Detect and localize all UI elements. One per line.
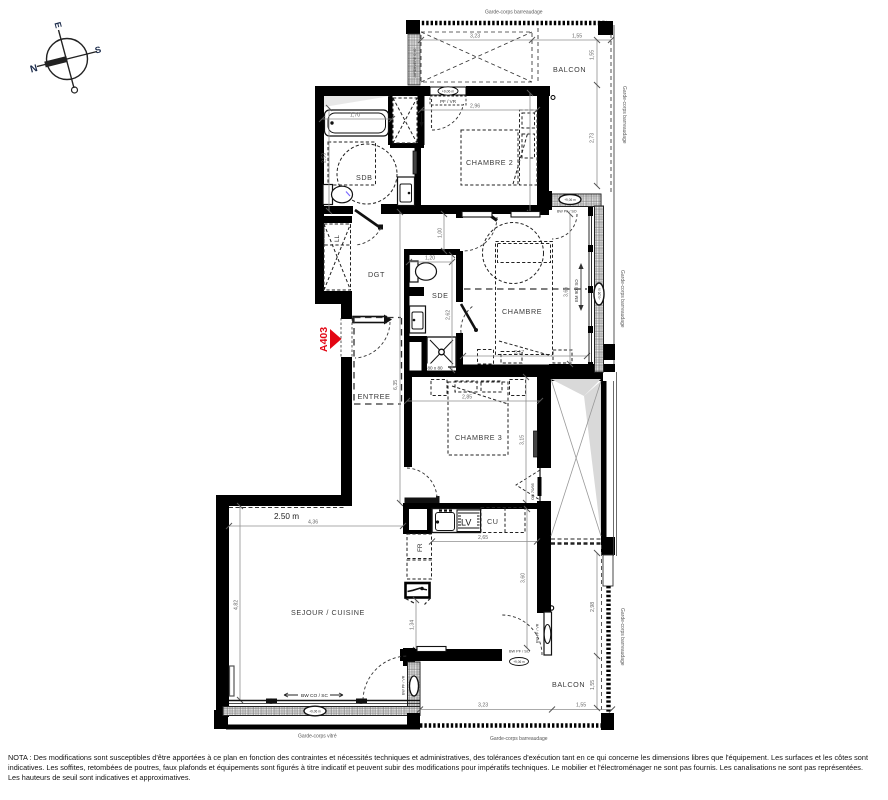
svg-text:CHAMBRE 2: CHAMBRE 2	[466, 158, 513, 167]
svg-text:+9,06 m: +9,06 m	[309, 710, 321, 714]
svg-text:1,20: 1,20	[425, 256, 435, 262]
svg-text:1,55: 1,55	[572, 34, 582, 40]
svg-text:3,66: 3,66	[564, 287, 570, 297]
svg-text:3,15: 3,15	[520, 435, 526, 445]
svg-text:CHAMBRE 3: CHAMBRE 3	[455, 433, 502, 442]
svg-text:2,53: 2,53	[322, 153, 328, 163]
svg-text:Les hauteurs de seuil sont ind: Les hauteurs de seuil sont indicatives e…	[8, 773, 191, 782]
svg-text:3,23: 3,23	[478, 703, 488, 709]
svg-text:+9,06 m: +9,06 m	[442, 90, 455, 94]
svg-text:1,34: 1,34	[410, 620, 416, 630]
svg-text:LV: LV	[461, 518, 471, 528]
svg-text:CHAMBRE: CHAMBRE	[502, 307, 542, 316]
svg-text:BALCON: BALCON	[552, 680, 585, 689]
svg-text:1,55: 1,55	[590, 680, 596, 690]
svg-text:2,65: 2,65	[478, 535, 488, 541]
svg-text:Garde-corps barreaudage: Garde-corps barreaudage	[619, 608, 625, 666]
svg-text:4,82: 4,82	[234, 600, 240, 610]
svg-text:3,60: 3,60	[521, 573, 527, 583]
svg-text:Garde-corps barreaudage: Garde-corps barreaudage	[621, 86, 627, 144]
svg-text:Garde-corps barreaudage: Garde-corps barreaudage	[485, 10, 543, 16]
svg-text:SDE: SDE	[432, 291, 449, 300]
svg-text:NOTA : Des modifications sont: NOTA : Des modifications sont susceptibl…	[8, 753, 868, 762]
svg-text:1,55: 1,55	[576, 703, 586, 709]
svg-text:2.50 m: 2.50 m	[274, 512, 299, 521]
svg-text:SDB: SDB	[356, 173, 373, 182]
svg-text:2,73: 2,73	[590, 133, 596, 143]
svg-text:2,62: 2,62	[446, 310, 452, 320]
svg-text:DGT: DGT	[368, 270, 385, 279]
svg-text:EM 90 / SO: EM 90 / SO	[574, 279, 579, 302]
svg-text:1,70: 1,70	[350, 113, 360, 119]
svg-text:BW PF / VR: BW PF / VR	[536, 623, 540, 643]
svg-text:BALCON: BALCON	[553, 65, 586, 74]
svg-text:LL: LL	[334, 235, 341, 242]
svg-text:3,23: 3,23	[470, 34, 480, 40]
svg-text:JARDINIERE 0,40: JARDINIERE 0,40	[413, 49, 417, 78]
svg-text:2,96: 2,96	[470, 104, 480, 110]
svg-text:6,35: 6,35	[393, 380, 399, 390]
svg-text:4,36: 4,36	[308, 520, 318, 526]
svg-text:CU: CU	[487, 517, 499, 526]
svg-text:Garde-corps barreaudage: Garde-corps barreaudage	[619, 270, 625, 328]
svg-text:SEJOUR / CUISINE: SEJOUR / CUISINE	[291, 608, 365, 617]
svg-text:Garde-corps vitré: Garde-corps vitré	[298, 734, 337, 740]
svg-text:BW PF / SO: BW PF / SO	[509, 650, 530, 654]
svg-text:PF / VR: PF / VR	[440, 99, 457, 104]
svg-text:BW CO / SC: BW CO / SC	[301, 693, 328, 699]
svg-text:OB 70/95: OB 70/95	[530, 482, 535, 500]
svg-text:BW PF / VR: BW PF / VR	[402, 675, 406, 695]
svg-text:2,98: 2,98	[590, 602, 596, 612]
svg-text:Garde-corps barreaudage: Garde-corps barreaudage	[490, 736, 548, 742]
svg-text:indicatives. Les soffites, ret: indicatives. Les soffites, retombées de …	[8, 763, 863, 772]
svg-text:1,00: 1,00	[438, 228, 444, 238]
svg-text:+9,06 m: +9,06 m	[564, 198, 576, 202]
svg-text:+9,06 m: +9,06 m	[598, 288, 602, 300]
svg-text:3,17: 3,17	[514, 350, 524, 356]
svg-text:1,55: 1,55	[590, 50, 596, 60]
svg-text:2,85: 2,85	[462, 395, 472, 401]
svg-text:A403: A403	[318, 327, 330, 352]
svg-text:FR: FR	[417, 543, 424, 552]
svg-text:ENTREE: ENTREE	[358, 392, 391, 401]
svg-text:80 x 80: 80 x 80	[428, 366, 444, 371]
svg-text:+9,06 m: +9,06 m	[513, 660, 525, 664]
